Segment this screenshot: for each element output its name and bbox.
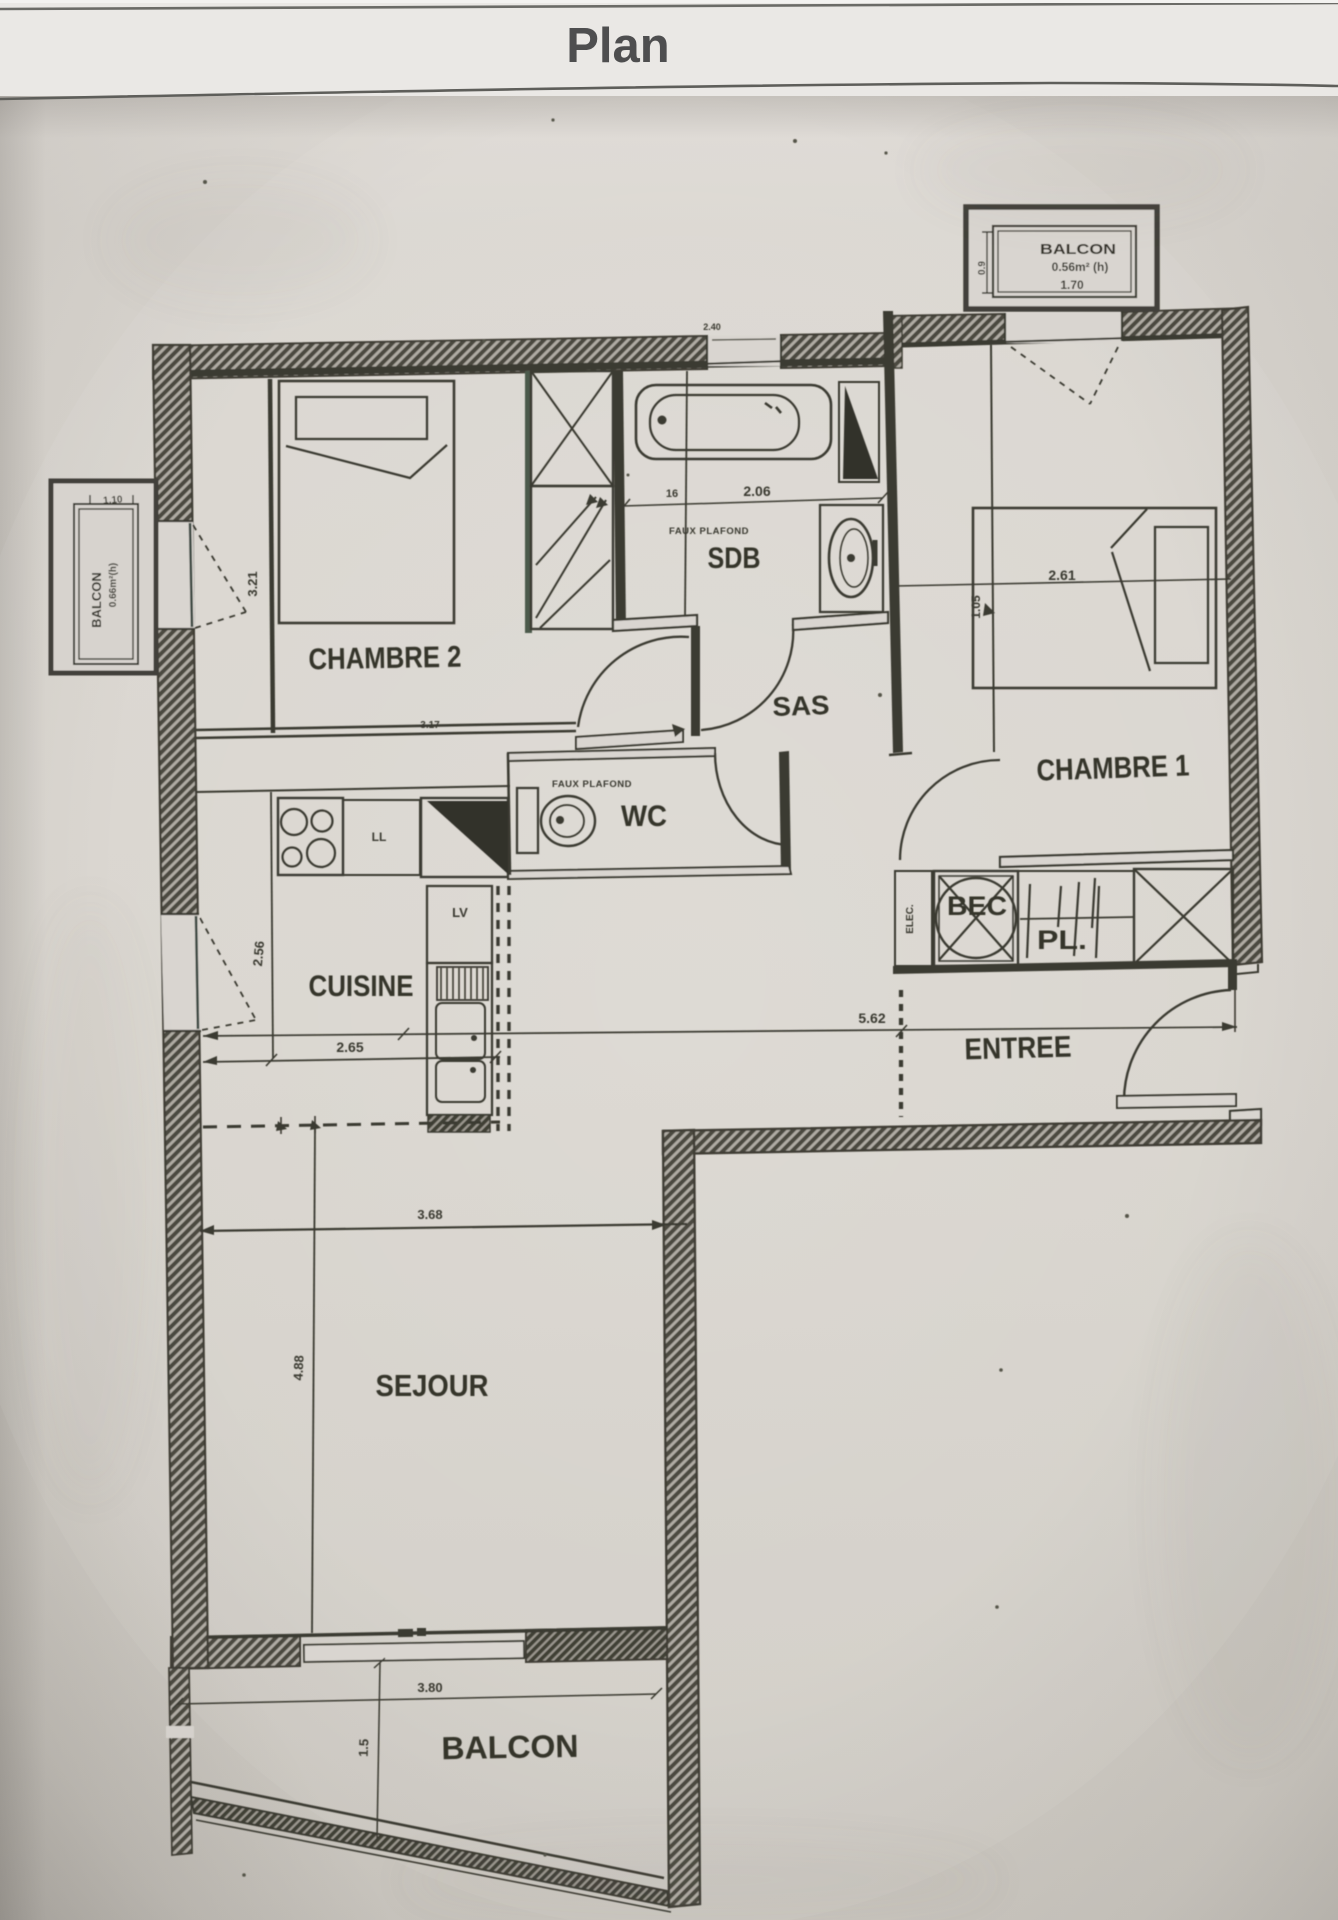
svg-text:1.70: 1.70 — [1060, 278, 1084, 292]
svg-text:4.88: 4.88 — [291, 1355, 307, 1381]
svg-text:ELEC.: ELEC. — [905, 904, 916, 934]
svg-text:FAUX PLAFOND: FAUX PLAFOND — [552, 779, 632, 790]
svg-text:0.56m² (h): 0.56m² (h) — [1052, 260, 1109, 274]
svg-text:2.40: 2.40 — [703, 322, 721, 332]
svg-text:Plan: Plan — [566, 19, 669, 73]
svg-text:1.5: 1.5 — [356, 1739, 372, 1758]
svg-text:3.68: 3.68 — [417, 1207, 442, 1222]
svg-text:SDB: SDB — [708, 542, 761, 575]
svg-text:1.05: 1.05 — [969, 595, 983, 619]
svg-text:BALCON: BALCON — [89, 572, 104, 628]
svg-text:2.61: 2.61 — [1048, 567, 1075, 583]
svg-text:SEJOUR: SEJOUR — [376, 1368, 489, 1403]
svg-text:ENTREE: ENTREE — [964, 1031, 1072, 1067]
svg-text:0.9: 0.9 — [977, 261, 988, 275]
svg-text:LL: LL — [372, 830, 387, 844]
svg-text:3.21: 3.21 — [245, 571, 260, 596]
svg-text:2.65: 2.65 — [336, 1039, 363, 1055]
svg-text:CHAMBRE 2: CHAMBRE 2 — [308, 641, 462, 677]
svg-text:BALCON: BALCON — [1040, 241, 1116, 258]
svg-text:16: 16 — [666, 488, 678, 500]
svg-text:FAUX PLAFOND: FAUX PLAFOND — [669, 526, 749, 537]
svg-text:BEC: BEC — [947, 891, 1007, 921]
svg-text:1.10: 1.10 — [103, 494, 124, 506]
svg-text:WC: WC — [621, 800, 667, 833]
svg-text:PL.: PL. — [1037, 925, 1087, 955]
svg-text:3.80: 3.80 — [417, 1680, 442, 1695]
svg-text:2.56: 2.56 — [250, 940, 267, 967]
svg-text:SAS: SAS — [772, 690, 830, 722]
svg-text:BALCON: BALCON — [441, 1728, 579, 1766]
svg-text:0.66m²(h): 0.66m²(h) — [108, 563, 119, 607]
svg-text:3.17: 3.17 — [420, 720, 440, 731]
svg-text:CHAMBRE 1: CHAMBRE 1 — [1036, 749, 1190, 787]
svg-text:2.06: 2.06 — [743, 483, 770, 499]
svg-text:LV: LV — [452, 905, 468, 920]
svg-text:CUISINE: CUISINE — [309, 970, 414, 1003]
svg-text:5.62: 5.62 — [858, 1010, 885, 1026]
